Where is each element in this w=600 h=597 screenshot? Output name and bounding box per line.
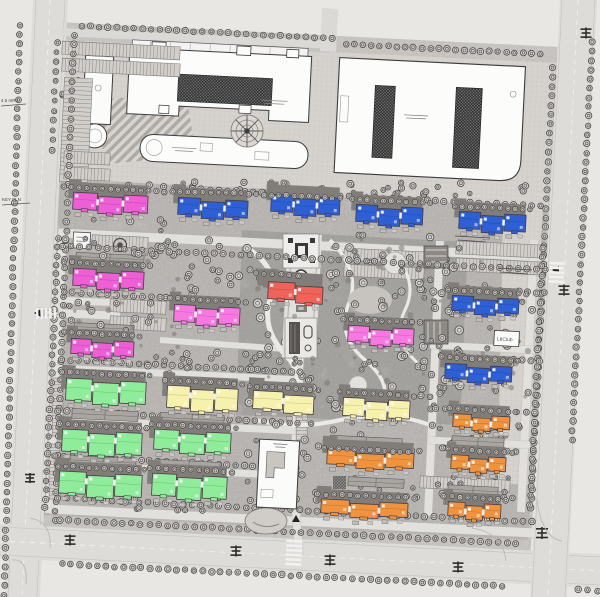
- svg-text:KEY PLN: KEY PLN: [2, 197, 21, 202]
- svg-text:LtlClub: LtlClub: [497, 337, 513, 344]
- svg-text:4.5 mRd: 4.5 mRd: [1, 98, 19, 103]
